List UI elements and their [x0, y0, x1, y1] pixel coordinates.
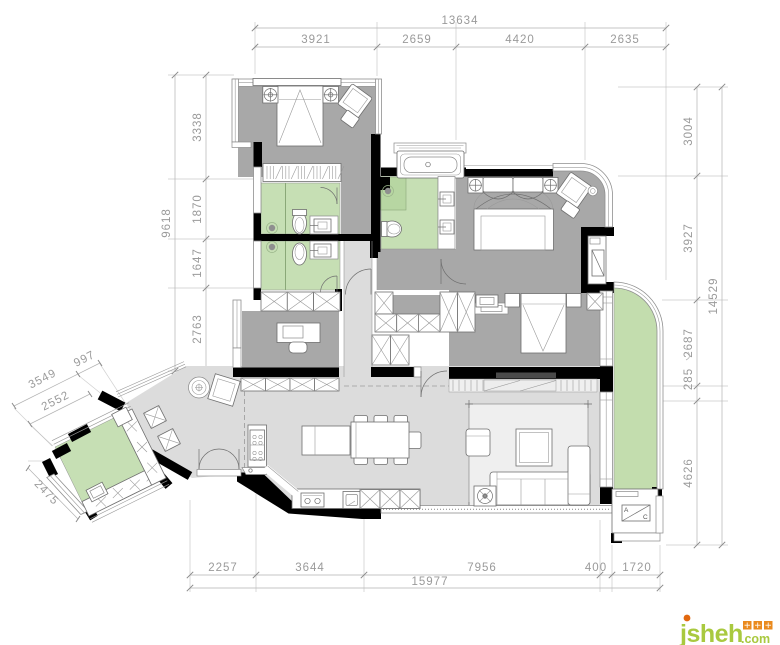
svg-text:A: A — [624, 507, 629, 514]
svg-text:C: C — [643, 514, 648, 521]
svg-text:9618: 9618 — [161, 208, 173, 238]
svg-text:2659: 2659 — [402, 34, 432, 46]
svg-text:3921: 3921 — [301, 34, 331, 46]
svg-text:3004: 3004 — [683, 116, 695, 146]
svg-text:4420: 4420 — [505, 34, 535, 46]
svg-text:14529: 14529 — [708, 278, 720, 315]
svg-text:1720: 1720 — [622, 562, 652, 574]
svg-text:1870: 1870 — [192, 194, 204, 224]
svg-text:13634: 13634 — [442, 15, 479, 27]
svg-text:2635: 2635 — [610, 34, 640, 46]
svg-text:285: 285 — [683, 368, 695, 390]
svg-text:3338: 3338 — [192, 112, 204, 142]
svg-text:.com: .com — [741, 632, 770, 645]
svg-text:3644: 3644 — [295, 562, 325, 574]
svg-text:2763: 2763 — [192, 314, 204, 344]
svg-text:3927: 3927 — [683, 223, 695, 253]
svg-text:400: 400 — [585, 562, 607, 574]
svg-text:2257: 2257 — [208, 562, 238, 574]
svg-text:jsheh: jsheh — [679, 620, 743, 645]
svg-text:15977: 15977 — [412, 576, 449, 588]
svg-text:1647: 1647 — [192, 248, 204, 278]
svg-text:7956: 7956 — [467, 562, 497, 574]
svg-text:4626: 4626 — [683, 458, 695, 488]
